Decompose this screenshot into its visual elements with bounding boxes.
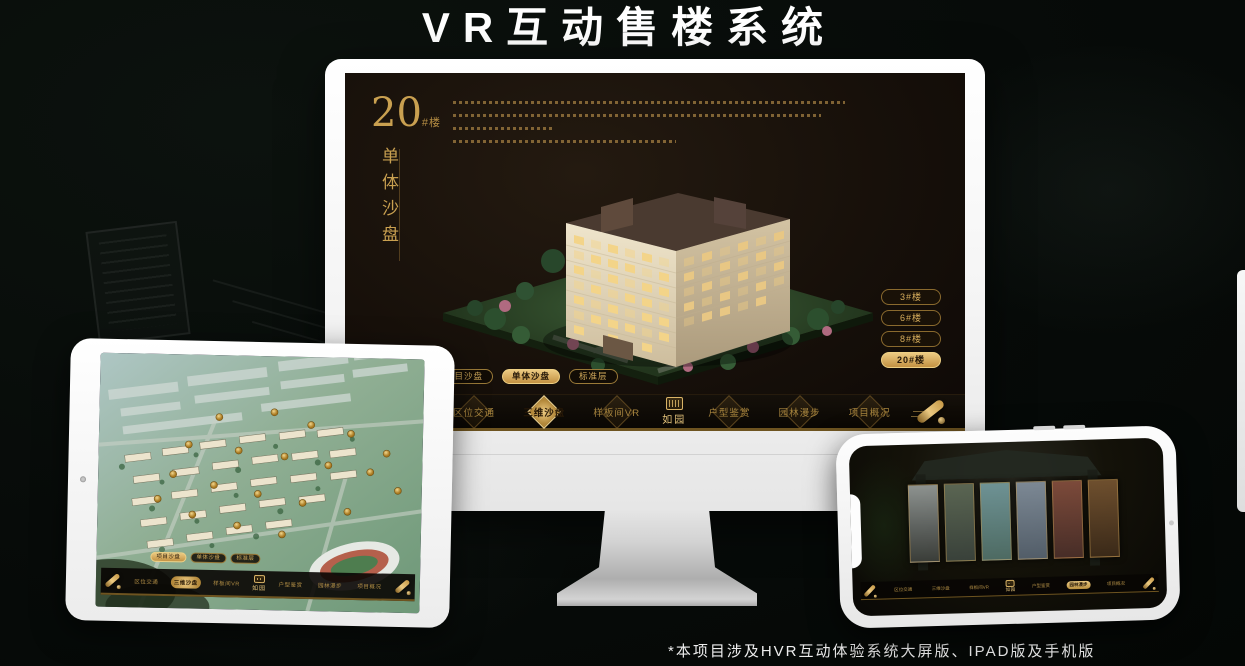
- subtab-standard-floor[interactable]: 标准层: [569, 369, 618, 384]
- nav-item-floorplans[interactable]: 户型鉴赏: [275, 578, 305, 591]
- scroll-menu-icon[interactable]: [394, 575, 412, 597]
- nav-item-garden-walk[interactable]: 园林漫步: [773, 402, 827, 422]
- brand-logo[interactable]: 如园: [662, 397, 686, 426]
- nav-item-floorplans[interactable]: 户型鉴赏: [702, 402, 756, 422]
- tablet-subtab-project-sandbox[interactable]: 项目沙盘: [150, 552, 186, 563]
- phone-notch: [849, 494, 862, 568]
- scene-panel-garden[interactable]: [944, 483, 976, 562]
- building-button-3[interactable]: 3#楼: [881, 289, 941, 305]
- nav-item-showroom-vr[interactable]: 样板间VR: [966, 583, 992, 592]
- brand-logo[interactable]: 如园: [1005, 580, 1015, 593]
- sandbox-subtabs: 项目沙盘 单体沙盘 标准层: [435, 369, 618, 384]
- building-button-6[interactable]: 6#楼: [881, 310, 941, 326]
- nav-item-garden-walk[interactable]: 园林漫步: [1066, 580, 1090, 589]
- scene-panel-facade[interactable]: [1016, 481, 1048, 560]
- nav-item-project-overview[interactable]: 项目概况: [354, 580, 384, 593]
- scroll-menu-icon[interactable]: [104, 569, 122, 591]
- tablet-screen: 项目沙盘 单体沙盘 标准层 区位交通 三维沙盘 样板间VR 如园 户型鉴赏 园林…: [95, 353, 424, 614]
- nav-item-location[interactable]: 区位交通: [447, 402, 501, 422]
- logo-text: 如园: [662, 411, 686, 426]
- scroll-menu-icon[interactable]: [1141, 573, 1156, 591]
- logo-seal-icon: [666, 397, 683, 410]
- scene-panel-aerial[interactable]: [980, 482, 1012, 561]
- nav-item-project-overview[interactable]: 项目概况: [843, 402, 897, 422]
- scroll-menu-icon[interactable]: [913, 395, 949, 429]
- courtyard-pavilion-roof: [911, 447, 1102, 480]
- logo-text: 如园: [1006, 587, 1016, 593]
- poster: VR互动售楼系统 20#楼 单体沙盘: [0, 0, 1245, 666]
- background-picture-frame: [85, 221, 190, 345]
- nav-item-project-overview[interactable]: 项目概况: [1104, 579, 1128, 588]
- nav-item-3d-sandbox[interactable]: 三维沙盘: [929, 584, 953, 593]
- phone-volume-button: [1063, 425, 1085, 430]
- page-title: VR互动售楼系统: [0, 0, 1245, 56]
- block-subtitle: 单体沙盘: [376, 147, 401, 251]
- nav-item-floorplans[interactable]: 户型鉴赏: [1029, 581, 1053, 590]
- tablet-subtab-single-sandbox[interactable]: 单体沙盘: [190, 553, 226, 564]
- scene-panel-interior[interactable]: [1088, 479, 1120, 558]
- building-button-20[interactable]: 20#楼: [881, 352, 941, 368]
- building-3d-model[interactable]: [433, 139, 883, 389]
- nav-item-location[interactable]: 区位交通: [131, 575, 161, 588]
- block-unit-label: #楼: [422, 117, 441, 129]
- logo-text: 如园: [252, 583, 266, 592]
- scene-gallery: [908, 479, 1120, 563]
- building-button-8[interactable]: 8#楼: [881, 331, 941, 347]
- edition-footnote: *本项目涉及HVR互动体验系统大屏版、IPAD版及手机版: [668, 640, 1095, 661]
- nav-item-garden-walk[interactable]: 园林漫步: [315, 579, 345, 592]
- tablet-subtab-standard-floor[interactable]: 标准层: [230, 553, 260, 564]
- scene-panel-courtyard[interactable]: [908, 484, 940, 563]
- logo-seal-icon: [1006, 580, 1015, 587]
- phone-camera-icon: [1169, 520, 1174, 525]
- nav-item-showroom-vr[interactable]: 样板间VR: [210, 576, 243, 589]
- nav-item-3d-sandbox[interactable]: 三维沙盘: [517, 402, 571, 422]
- brand-logo[interactable]: 如园: [252, 575, 266, 592]
- tablet-device: 项目沙盘 单体沙盘 标准层 区位交通 三维沙盘 样板间VR 如园 户型鉴赏 园林…: [65, 338, 455, 628]
- logo-seal-icon: [254, 575, 265, 583]
- phone-screen: 区位交通 三维沙盘 样板间VR 如园 户型鉴赏 园林漫步 项目概况: [849, 438, 1168, 617]
- scene-panel-autumn[interactable]: [1052, 480, 1084, 559]
- tablet-camera-icon: [80, 476, 86, 482]
- nav-item-showroom-vr[interactable]: 样板间VR: [587, 402, 646, 422]
- nav-item-3d-sandbox[interactable]: 三维沙盘: [171, 576, 201, 589]
- monitor-stand: [557, 509, 757, 606]
- phone-volume-button: [1033, 426, 1055, 431]
- building-button-group: 3#楼 6#楼 8#楼 20#楼: [881, 289, 941, 373]
- scroll-menu-icon[interactable]: [862, 581, 877, 599]
- subtab-single-sandbox[interactable]: 单体沙盘: [502, 369, 560, 384]
- block-title: 20#楼: [371, 93, 441, 133]
- nav-item-location[interactable]: 区位交通: [891, 585, 915, 594]
- phone-device: 区位交通 三维沙盘 样板间VR 如园 户型鉴赏 园林漫步 项目概况: [835, 425, 1180, 628]
- cropped-device-edge: [1237, 270, 1245, 512]
